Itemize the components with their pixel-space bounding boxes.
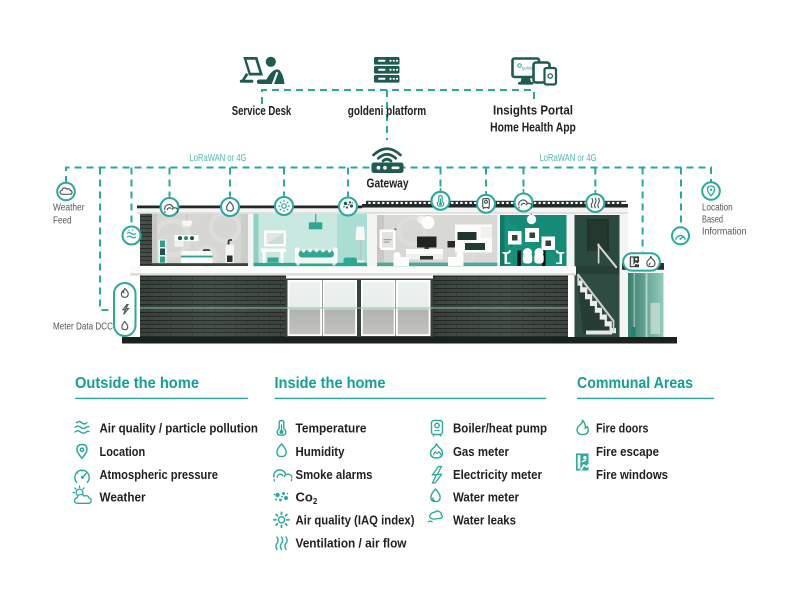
svg-text:Gateway: Gateway	[367, 177, 409, 191]
svg-text:Based: Based	[702, 214, 723, 226]
svg-text:Boiler/heat pump: Boiler/heat pump	[453, 420, 547, 435]
svg-text:Weather: Weather	[100, 489, 146, 504]
svg-text:Insights Portal: Insights Portal	[493, 104, 573, 118]
svg-text:Electricity meter: Electricity meter	[453, 467, 542, 482]
svg-text:Water meter: Water meter	[453, 489, 519, 504]
svg-text:Water leaks: Water leaks	[453, 512, 516, 527]
svg-text:Home Health App: Home Health App	[490, 121, 576, 135]
svg-text:Information: Information	[702, 226, 747, 238]
svg-text:Outside the home: Outside the home	[75, 375, 199, 392]
svg-text:Weather: Weather	[53, 202, 85, 214]
svg-text:LoRaWAN or 4G: LoRaWAN or 4G	[540, 153, 597, 164]
svg-text:Meter Data DCC: Meter Data DCC	[53, 321, 113, 333]
svg-text:Fire windows: Fire windows	[596, 467, 668, 482]
svg-text:Fire doors: Fire doors	[596, 420, 649, 435]
svg-text:Location: Location	[702, 202, 733, 214]
svg-text:Atmospheric pressure: Atmospheric pressure	[100, 467, 218, 482]
svg-text:Smoke alarms: Smoke alarms	[296, 467, 373, 482]
svg-text:goldeni platform: goldeni platform	[348, 104, 426, 118]
svg-text:Communal Areas: Communal Areas	[577, 375, 693, 392]
svg-text:Service Desk: Service Desk	[232, 104, 292, 118]
svg-text:Gas meter: Gas meter	[453, 444, 509, 459]
svg-text:Air quality (IAQ index): Air quality (IAQ index)	[296, 512, 415, 527]
svg-text:Humidity: Humidity	[296, 444, 346, 459]
svg-text:LoRaWAN or 4G: LoRaWAN or 4G	[190, 153, 247, 164]
svg-text:Air quality / particle polluti: Air quality / particle pollution	[100, 420, 258, 435]
svg-text:Inside the home: Inside the home	[275, 375, 386, 392]
svg-text:Temperature: Temperature	[296, 420, 367, 435]
svg-text:Location: Location	[100, 444, 146, 459]
svg-text:Ventilation / air flow: Ventilation / air flow	[296, 535, 408, 550]
svg-text:Feed: Feed	[53, 215, 72, 227]
svg-text:Co2: Co2	[296, 489, 318, 506]
svg-text:Fire escape: Fire escape	[596, 444, 659, 459]
